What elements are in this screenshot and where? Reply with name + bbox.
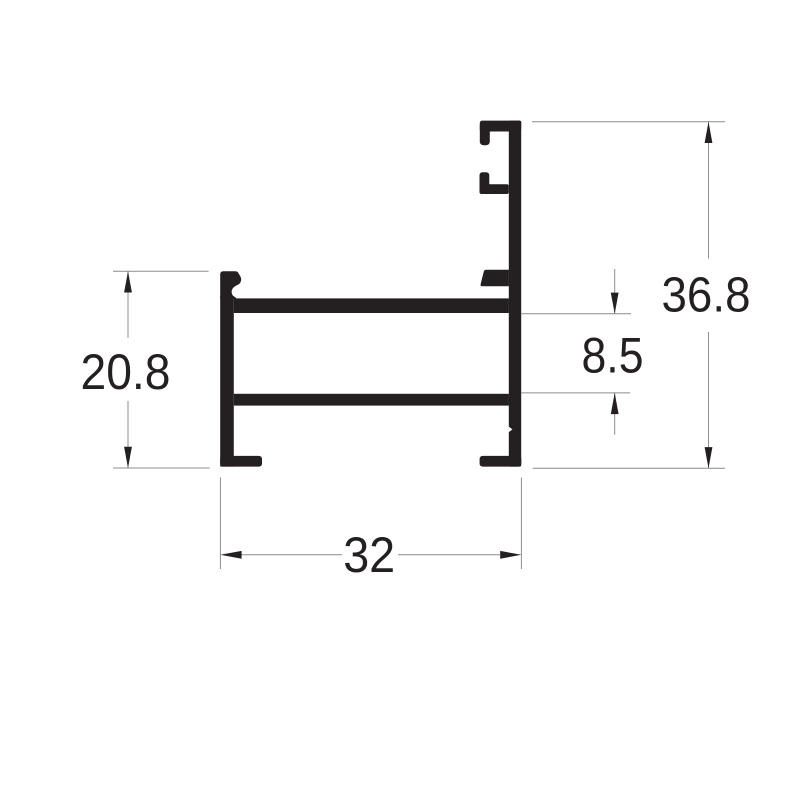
svg-text:20.8: 20.8 bbox=[81, 343, 171, 400]
svg-text:36.8: 36.8 bbox=[662, 269, 751, 323]
svg-text:32: 32 bbox=[343, 527, 395, 583]
svg-text:8.5: 8.5 bbox=[582, 327, 644, 384]
